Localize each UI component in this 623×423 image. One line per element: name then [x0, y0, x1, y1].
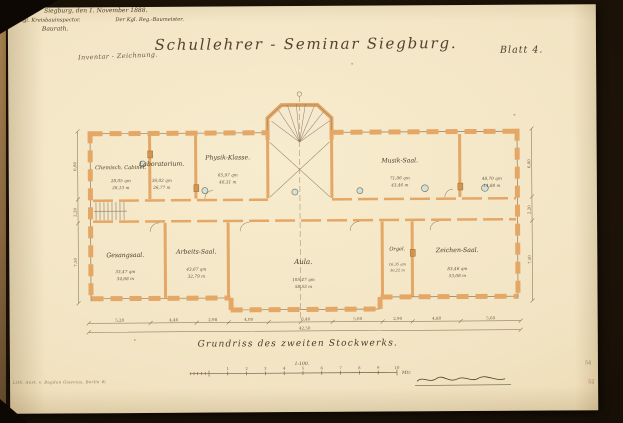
backdrop-corner-shadow — [0, 0, 58, 34]
scale-number: 3 — [264, 366, 267, 371]
room-label: Zeichen-Saal. — [435, 247, 479, 254]
axis-marker — [297, 92, 301, 96]
room-vol: 32,79 m — [188, 274, 205, 279]
room-area: 16,35 qm — [389, 262, 407, 266]
floorplan-drawing: 5,20 4,46 2,98 4,00 6,40 5,00 2,90 4,80 … — [8, 4, 598, 414]
room-label: Laboratorium. — [138, 161, 184, 168]
dimension-value: 4,46 — [169, 317, 178, 322]
room-label: Physik-Klasse. — [204, 154, 250, 161]
room-vol: 26,77 m — [152, 185, 170, 190]
photographed-archive-scan: Inventar - Zeichnung. Schullehrer - Semi… — [0, 0, 623, 423]
margin-number: 54 — [585, 360, 591, 366]
room-label: Musik-Saal. — [380, 157, 418, 164]
lithographer-print-line: Lith. Anst. v. Bogdan Gisevius, Berlin W… — [13, 379, 107, 385]
scale-number: 7 — [339, 365, 342, 370]
paper-speck — [134, 339, 136, 341]
paper-speck — [351, 63, 353, 65]
room-vol: 26,13 m — [111, 185, 129, 190]
scale-number: 9 — [377, 365, 380, 370]
room-vol: 14,88 m — [483, 183, 500, 188]
dimension-value: 6,40 — [301, 316, 310, 321]
oven-symbol — [202, 188, 208, 194]
room-vol: 53,08 m — [449, 273, 466, 278]
room-area: 36,02 qm — [152, 178, 172, 183]
dimension-total: 42,50 — [299, 325, 311, 330]
oven-symbol — [357, 188, 363, 194]
room-vol: 30,22 m — [390, 268, 405, 272]
room-label: Arbeits-Saal. — [175, 249, 216, 256]
dimension-value: 2,20 — [72, 207, 77, 216]
corridor-walls — [93, 198, 516, 222]
signature-scribble — [413, 373, 517, 390]
paper-speck — [513, 114, 515, 116]
scale-number: 4 — [283, 366, 286, 371]
scale-unit: Mtr. — [401, 371, 411, 376]
sheet-number: Blatt 4. — [500, 45, 543, 56]
staircase-steps — [94, 202, 127, 220]
dimension-value: 4,80 — [432, 316, 441, 321]
room-vol: 34,68 m — [117, 276, 134, 281]
room-area: 43,67 qm — [185, 267, 206, 272]
dimension-value: 5,00 — [353, 316, 362, 321]
oven-symbol — [292, 189, 298, 195]
room-area: 105,47 qm — [292, 277, 315, 282]
room-label: Orgel. — [389, 246, 405, 252]
book-edge-strip — [0, 0, 6, 423]
room-area: 65,97 qm — [218, 172, 238, 177]
signature-stroke — [417, 377, 505, 382]
dimension-value: 5,60 — [486, 315, 495, 320]
room-area: 83,46 qm — [447, 266, 467, 271]
scale-number: 1 — [227, 366, 229, 371]
scale-number: 6 — [321, 365, 324, 370]
dimension-value: 2,90 — [393, 316, 402, 321]
room-vol: 46,31 m — [218, 179, 236, 184]
room-label: Aula. — [293, 258, 312, 266]
dimension-value: 2,98 — [208, 317, 217, 322]
plan-caption: Grundriss des zweiten Stockwerks. — [168, 338, 428, 350]
room-area: 71,06 qm — [390, 175, 410, 180]
scale-bar-line — [190, 372, 397, 373]
right-official-title: Der Kgl. Reg.-Baumeister. — [115, 17, 184, 23]
room-vol: 58,53 m — [295, 284, 312, 289]
scale-number: 8 — [358, 365, 361, 370]
room-label: Gesangsaal. — [106, 252, 144, 259]
room-area: 28,05 qm — [110, 178, 131, 183]
page-title: Schullehrer - Seminar Siegburg. — [146, 34, 466, 54]
oven-symbol — [421, 185, 428, 192]
interior-walls — [150, 129, 461, 298]
dimension-value: 7,50 — [73, 257, 78, 266]
dimension-value: 2,20 — [526, 205, 531, 214]
signature-underline — [415, 385, 511, 386]
scale-number: 2 — [245, 366, 248, 371]
dimension-value: 5,20 — [115, 318, 124, 323]
margin-number: 52 — [588, 379, 594, 385]
room-vol: 43,46 m — [390, 182, 408, 187]
scale-number: 10 — [395, 365, 400, 370]
drawing-sheet: Inventar - Zeichnung. Schullehrer - Semi… — [8, 4, 598, 414]
dimension-value: 6,80 — [526, 159, 531, 168]
room-area: 33,47 qm — [115, 269, 135, 274]
dimension-value: 6,80 — [72, 161, 77, 170]
dimension-value: 4,00 — [244, 317, 253, 322]
backdrop-corner-shadow — [0, 399, 28, 423]
room-area: 48,70 qm — [481, 176, 502, 181]
dimension-value: 7,50 — [527, 255, 532, 264]
